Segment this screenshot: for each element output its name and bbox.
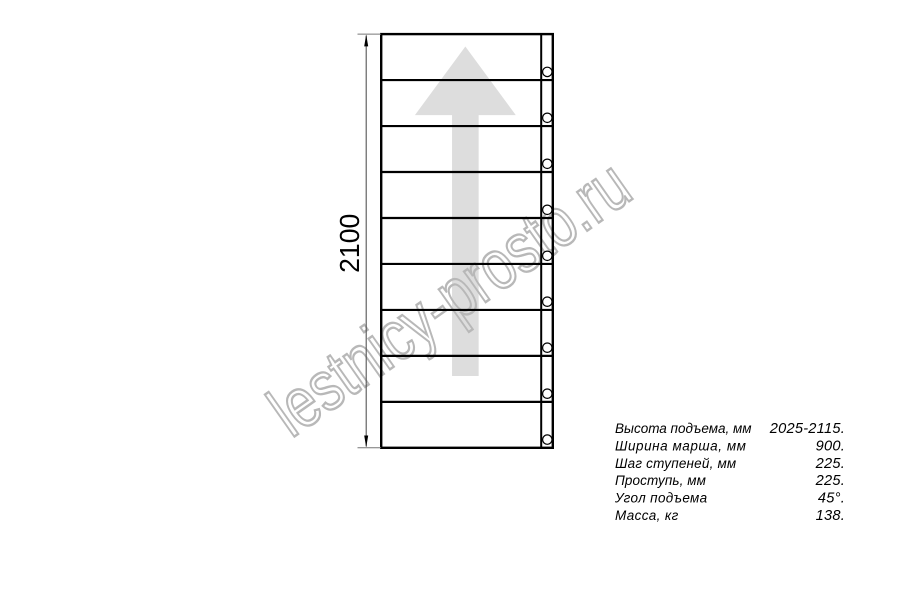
svg-text:Масса, кг: Масса, кг <box>615 508 679 523</box>
svg-text:2025-2115.: 2025-2115. <box>769 421 845 437</box>
svg-text:225.: 225. <box>815 473 845 489</box>
svg-text:Высота подъема, мм: Высота подъема, мм <box>615 421 751 436</box>
svg-text:Ширина марша, мм: Ширина марша, мм <box>615 438 746 453</box>
svg-text:Проступь, мм: Проступь, мм <box>615 473 706 488</box>
svg-text:900.: 900. <box>816 438 845 454</box>
svg-text:138.: 138. <box>816 508 845 524</box>
svg-text:Угол подъема: Угол подъема <box>614 491 708 506</box>
svg-text:225.: 225. <box>815 456 845 472</box>
svg-text:45°.: 45°. <box>818 491 845 507</box>
svg-text:Шаг ступеней, мм: Шаг ступеней, мм <box>615 456 736 471</box>
svg-text:2100: 2100 <box>333 214 365 273</box>
